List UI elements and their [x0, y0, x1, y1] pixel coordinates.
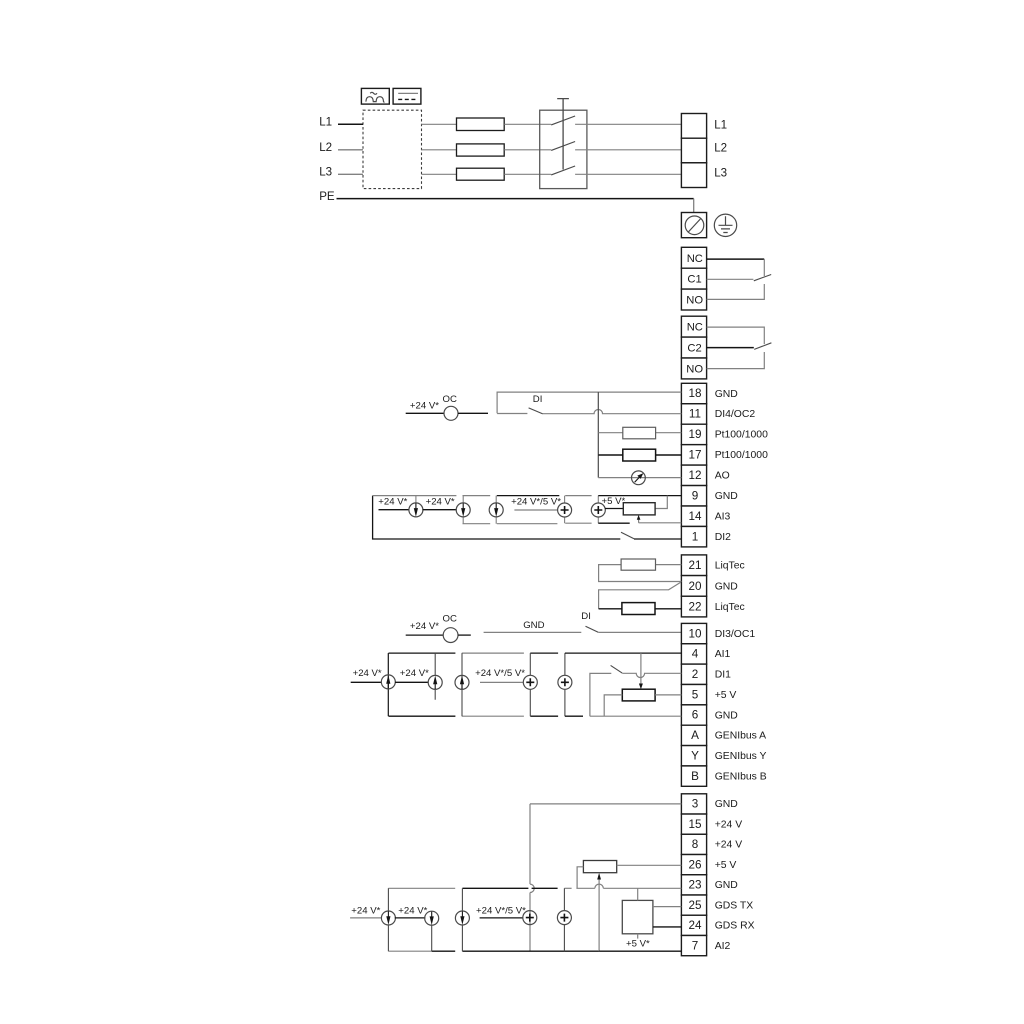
svg-text:+24 V*/5 V*: +24 V*/5 V* [475, 668, 525, 679]
svg-text:26: 26 [688, 858, 701, 871]
svg-text:+24 V*: +24 V* [410, 401, 439, 412]
svg-text:2: 2 [692, 668, 699, 681]
svg-text:L1: L1 [714, 119, 727, 132]
svg-text:23: 23 [688, 879, 701, 892]
svg-text:AI3: AI3 [715, 512, 731, 523]
svg-text:25: 25 [688, 899, 702, 912]
svg-text:4: 4 [692, 648, 699, 661]
svg-text:GND: GND [715, 491, 738, 502]
svg-text:L2: L2 [714, 141, 727, 154]
svg-text:6: 6 [692, 709, 699, 722]
svg-text:GENIbus A: GENIbus A [715, 731, 766, 742]
svg-text:9: 9 [692, 489, 699, 502]
svg-text:AO: AO [715, 471, 730, 482]
svg-text:21: 21 [688, 559, 701, 572]
svg-text:PE: PE [319, 190, 335, 203]
svg-text:24: 24 [688, 919, 702, 932]
svg-text:OC: OC [443, 614, 457, 625]
svg-text:GND: GND [715, 389, 738, 400]
svg-text:GENIbus Y: GENIbus Y [715, 751, 767, 762]
svg-text:+24 V*: +24 V* [353, 668, 382, 679]
svg-text:15: 15 [688, 818, 702, 831]
svg-text:GND: GND [715, 710, 738, 721]
svg-text:12: 12 [688, 469, 701, 482]
svg-text:17: 17 [688, 449, 701, 462]
svg-text:GDS RX: GDS RX [715, 921, 755, 932]
svg-text:1: 1 [692, 530, 699, 543]
svg-text:DI: DI [581, 611, 591, 622]
svg-text:+24 V*: +24 V* [351, 905, 380, 916]
svg-text:L2: L2 [319, 141, 332, 154]
svg-text:DI3/OC1: DI3/OC1 [715, 629, 756, 640]
svg-text:Pt100/1000: Pt100/1000 [715, 450, 768, 461]
svg-text:L1: L1 [319, 116, 332, 129]
svg-text:C1: C1 [687, 274, 701, 286]
svg-text:5: 5 [692, 688, 699, 701]
svg-text:10: 10 [688, 627, 702, 640]
svg-text:+24 V: +24 V [715, 820, 743, 831]
svg-text:DI4/OC2: DI4/OC2 [715, 409, 756, 420]
svg-text:LiqTec: LiqTec [715, 561, 745, 572]
svg-text:L3: L3 [319, 166, 332, 179]
svg-text:+24 V: +24 V [715, 840, 743, 851]
svg-text:AI2: AI2 [715, 941, 731, 952]
svg-text:14: 14 [688, 510, 702, 523]
svg-text:+24 V*: +24 V* [398, 905, 427, 916]
svg-text:B: B [691, 770, 699, 783]
svg-text:20: 20 [688, 580, 702, 593]
svg-text:AI1: AI1 [715, 649, 731, 660]
svg-text:NO: NO [686, 364, 703, 376]
svg-text:GND: GND [715, 799, 738, 810]
svg-text:LiqTec: LiqTec [715, 602, 745, 613]
svg-text:GND: GND [523, 620, 544, 631]
svg-text:+24 V*: +24 V* [426, 496, 455, 507]
svg-text:GDS TX: GDS TX [715, 900, 754, 911]
svg-text:L3: L3 [714, 166, 727, 179]
svg-text:C2: C2 [687, 343, 701, 355]
svg-text:DI1: DI1 [715, 670, 731, 681]
svg-text:+24 V*/5 V*: +24 V*/5 V* [511, 496, 561, 507]
svg-text:+24 V*: +24 V* [400, 668, 429, 679]
svg-text:7: 7 [692, 939, 699, 952]
svg-text:NC: NC [687, 253, 703, 265]
svg-text:GND: GND [715, 880, 738, 891]
svg-text:A: A [691, 729, 699, 742]
svg-text:+5 V*: +5 V* [626, 938, 650, 949]
svg-text:22: 22 [688, 601, 701, 614]
svg-text:NC: NC [687, 322, 703, 334]
svg-text:8: 8 [692, 838, 699, 851]
svg-text:DI2: DI2 [715, 532, 731, 543]
svg-text:OC: OC [443, 394, 457, 405]
svg-text:3: 3 [692, 798, 699, 811]
svg-text:18: 18 [688, 387, 701, 400]
svg-text:+5 V: +5 V [715, 690, 737, 701]
svg-text:+24 V*: +24 V* [410, 621, 439, 632]
svg-text:NO: NO [686, 295, 703, 307]
svg-text:11: 11 [689, 408, 701, 421]
svg-text:+24 V*/5 V*: +24 V*/5 V* [476, 905, 526, 916]
svg-text:Y: Y [691, 749, 699, 762]
svg-text:DI: DI [533, 394, 543, 405]
svg-text:+24 V*: +24 V* [378, 496, 407, 507]
svg-text:GND: GND [715, 581, 738, 592]
svg-text:19: 19 [688, 428, 701, 441]
svg-text:+5 V: +5 V [715, 860, 737, 871]
svg-text:GENIbus B: GENIbus B [715, 771, 767, 782]
svg-text:Pt100/1000: Pt100/1000 [715, 430, 768, 441]
svg-text:+5 V*: +5 V* [602, 496, 626, 507]
